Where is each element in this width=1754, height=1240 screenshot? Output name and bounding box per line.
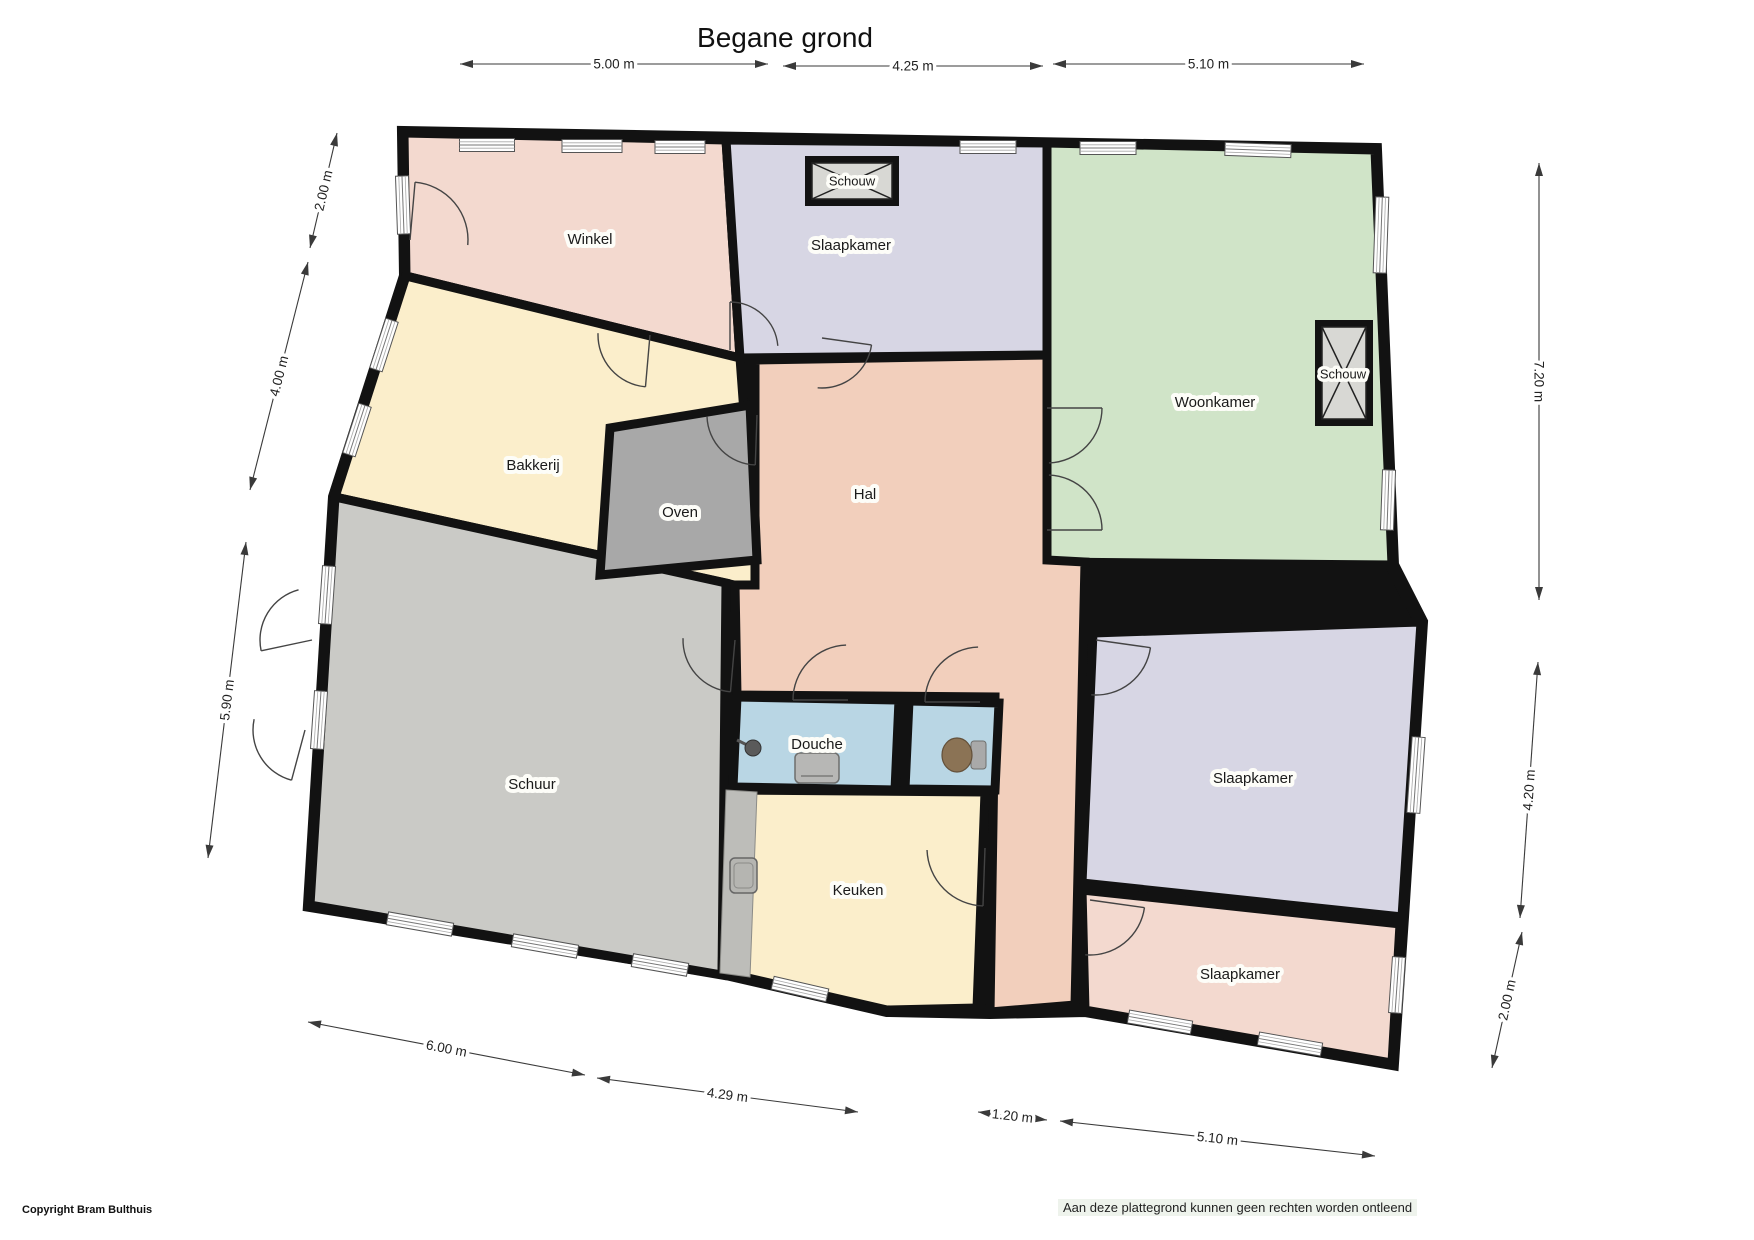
room-label-winkel: Winkel	[567, 231, 612, 248]
dimension-label: 4.00 m	[267, 354, 292, 398]
dimension: 4.29 m	[597, 1076, 858, 1115]
door	[253, 719, 305, 780]
window	[1380, 470, 1395, 530]
shower-tray-icon	[795, 753, 839, 783]
window	[655, 141, 705, 154]
room-keuken	[722, 790, 985, 1010]
dimension-label: 6.00 m	[425, 1037, 468, 1059]
window	[1373, 197, 1389, 273]
floorplan-svg: SchouwSchouwWinkelSlaapkamerWoonkamerBak…	[0, 0, 1754, 1240]
room-label-bakkerij: Bakkerij	[506, 457, 559, 474]
dimension-label: 2.00 m	[1495, 978, 1519, 1022]
floorplan-page: Begane grond SchouwSchouwWinkelSlaapkame…	[0, 0, 1754, 1240]
dimension-label: 4.29 m	[706, 1085, 749, 1105]
dimension-label: 5.90 m	[217, 679, 237, 722]
fireplace: Schouw	[1315, 320, 1373, 426]
window	[395, 176, 410, 234]
dimension: 2.00 m	[309, 133, 338, 248]
dimension-label: 5.10 m	[1196, 1129, 1239, 1148]
window	[1225, 142, 1291, 157]
dimension-label: 5.10 m	[1188, 57, 1229, 72]
dimension: 6.00 m	[308, 1021, 585, 1077]
door	[260, 590, 312, 651]
dimension: 2.00 m	[1491, 932, 1523, 1068]
dimension: 4.25 m	[783, 59, 1043, 74]
window	[960, 141, 1016, 154]
fireplace: Schouw	[805, 156, 899, 206]
sink-icon	[730, 858, 757, 893]
room-label-douche: Douche	[791, 736, 843, 753]
dimension-label: 5.00 m	[593, 57, 634, 72]
dimension-label: 2.00 m	[311, 169, 335, 213]
fireplace-label: Schouw	[829, 174, 876, 189]
room-label-slaapkamer-rechts: Slaapkamer	[1213, 770, 1293, 787]
dimension-label: 7.20 m	[1532, 361, 1547, 402]
dimension: 4.00 m	[249, 262, 308, 490]
dimension: 7.20 m	[1532, 163, 1547, 600]
dimension: 4.20 m	[1517, 662, 1541, 918]
window	[1080, 142, 1136, 155]
fireplace-label: Schouw	[1320, 367, 1367, 382]
dimension: 5.00 m	[460, 57, 768, 72]
room-label-schuur: Schuur	[508, 776, 556, 793]
room-oven	[600, 405, 757, 575]
room-label-hal: Hal	[854, 486, 877, 503]
window	[460, 139, 515, 152]
dimension: 5.90 m	[206, 542, 249, 858]
room-label-woonkamer: Woonkamer	[1175, 394, 1256, 411]
room-label-slaapkamer-boven: Slaapkamer	[811, 237, 891, 254]
toilet-icon	[942, 738, 986, 772]
room-label-slaapkamer-onder: Slaapkamer	[1200, 966, 1280, 983]
dimension: 5.10 m	[1053, 57, 1364, 72]
copyright-text: Copyright Bram Bulthuis	[22, 1204, 152, 1216]
dimension: 1.20 m	[978, 1106, 1047, 1126]
dimension-label: 4.20 m	[1520, 769, 1538, 811]
room-label-oven: Oven	[662, 504, 698, 521]
disclaimer-text: Aan deze plattegrond kunnen geen rechten…	[1058, 1199, 1417, 1216]
dimension-label: 1.20 m	[991, 1106, 1034, 1126]
dimension: 5.10 m	[1060, 1118, 1375, 1158]
dimension-label: 4.25 m	[892, 59, 933, 74]
room-label-keuken: Keuken	[833, 882, 884, 899]
window	[562, 140, 622, 153]
